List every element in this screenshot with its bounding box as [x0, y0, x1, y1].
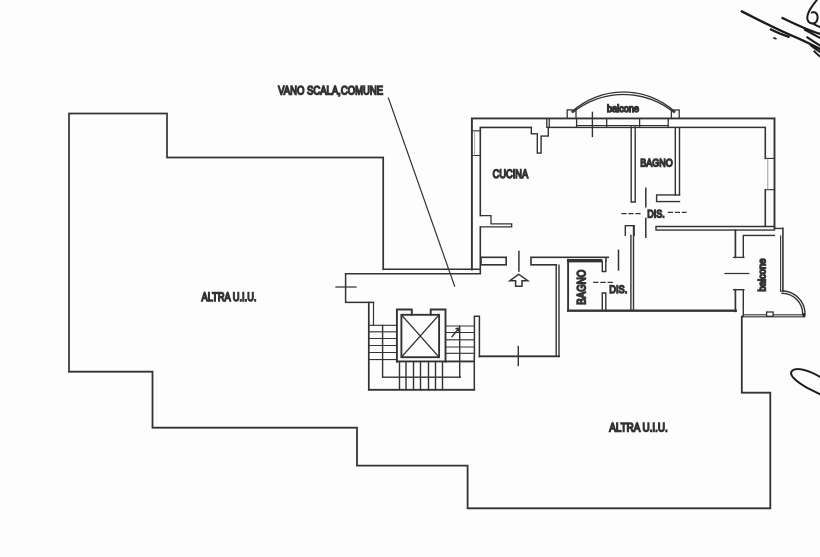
svg-text:DIS.: DIS.: [609, 284, 627, 296]
svg-text:ALTRA U.I.U.: ALTRA U.I.U.: [609, 423, 668, 435]
svg-text:VANO SCALA,COMUNE: VANO SCALA,COMUNE: [278, 85, 383, 97]
svg-text:ALTRA U.I.U.: ALTRA U.I.U.: [202, 292, 257, 304]
svg-text:balcone: balcone: [758, 258, 769, 291]
svg-text:CUCINA: CUCINA: [493, 169, 529, 181]
svg-text:BAGNO: BAGNO: [640, 158, 673, 170]
svg-text:BAGNO: BAGNO: [576, 270, 588, 305]
svg-text:DIS.: DIS.: [647, 209, 665, 221]
svg-text:balcone: balcone: [607, 104, 639, 115]
